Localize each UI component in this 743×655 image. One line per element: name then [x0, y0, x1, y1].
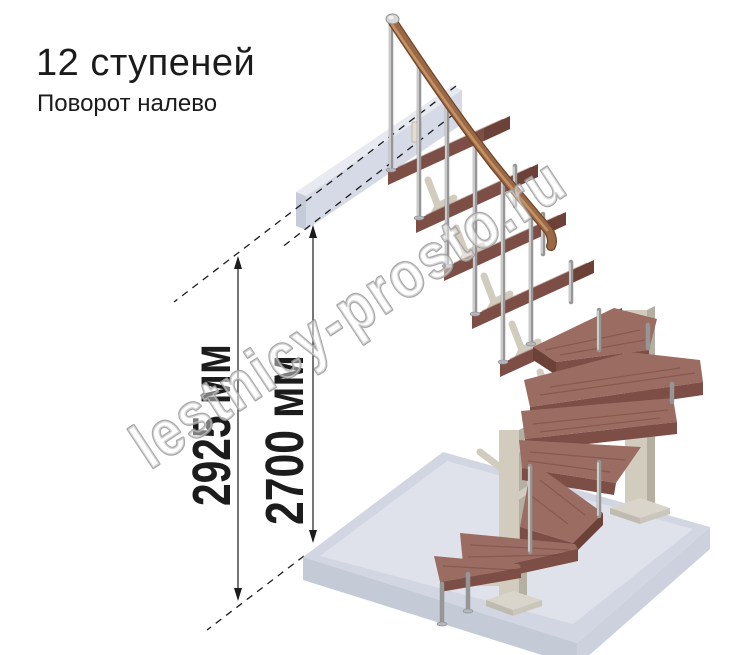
- projection-line-floor: [207, 556, 304, 630]
- staircase-illustration: 2925 мм 2700 мм: [0, 0, 743, 655]
- handrail-end-cap: [386, 14, 399, 24]
- staircase-diagram-page: 12 ступеней Поворот налево 2925: [0, 0, 743, 655]
